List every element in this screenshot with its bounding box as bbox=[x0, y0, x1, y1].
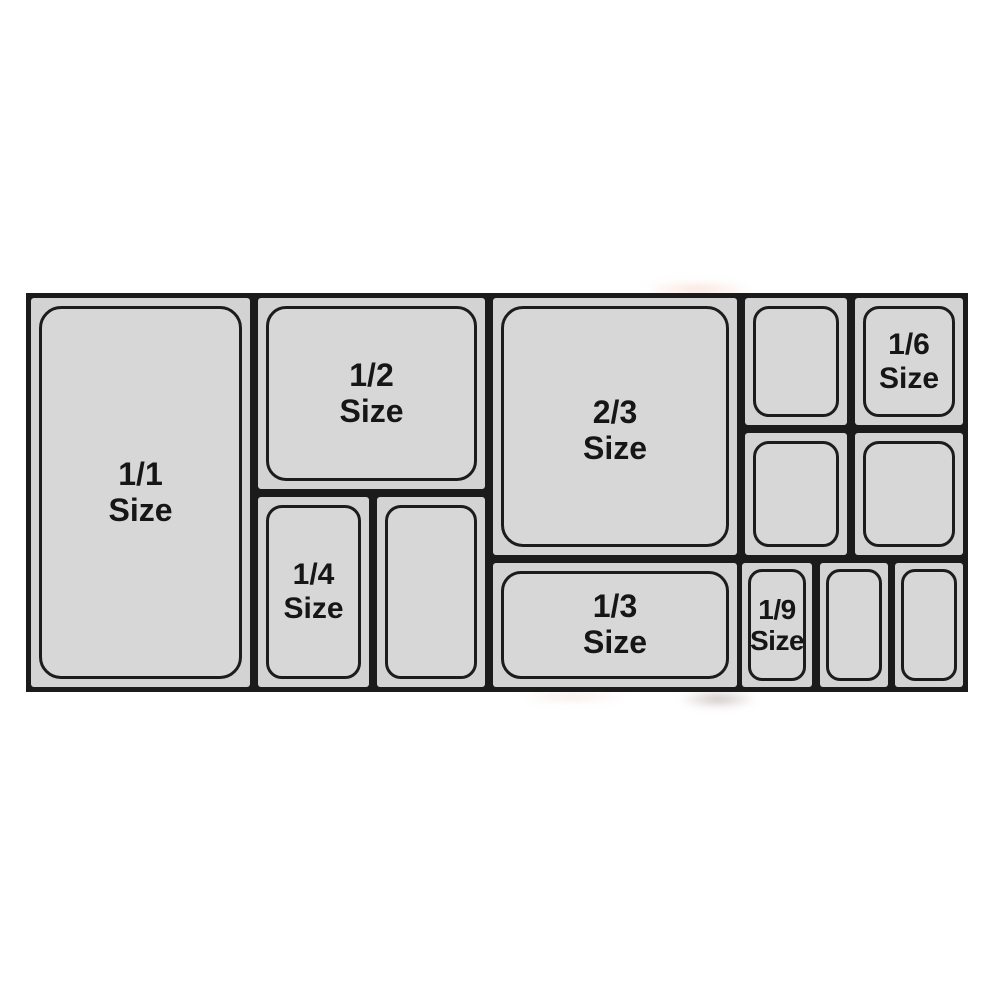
photo-artifact-smudge bbox=[678, 690, 758, 708]
pan-fraction: 2/3 bbox=[593, 395, 637, 431]
pan-tile-unlabeled-ninth-2 bbox=[895, 563, 963, 687]
pan-outline bbox=[385, 505, 477, 679]
pan-outline bbox=[901, 569, 957, 681]
pan-outline bbox=[753, 306, 839, 417]
pan-outline bbox=[753, 441, 839, 547]
pan-size-label: 2/3 Size bbox=[493, 298, 737, 555]
pan-fraction: 1/9 bbox=[758, 594, 795, 625]
pan-tile-1-6: 1/6 Size bbox=[855, 298, 963, 425]
pan-tile-unlabeled-sixth-2 bbox=[745, 433, 847, 555]
pan-size-word: Size bbox=[339, 394, 403, 430]
pan-size-word: Size bbox=[879, 362, 939, 396]
pan-size-word: Size bbox=[583, 431, 647, 467]
pan-fraction: 1/1 bbox=[118, 457, 162, 493]
pan-fraction: 1/2 bbox=[349, 358, 393, 394]
pan-size-label: 1/1 Size bbox=[31, 298, 250, 687]
pan-size-label: 1/2 Size bbox=[258, 298, 485, 489]
pan-size-word: Size bbox=[583, 625, 647, 661]
pan-fraction: 1/4 bbox=[293, 558, 335, 592]
pan-outline bbox=[863, 441, 955, 547]
pan-size-chart: 1/1 Size 1/2 Size 1/4 Size 2/3 Size 1 bbox=[26, 293, 968, 692]
pan-fraction: 1/6 bbox=[888, 328, 930, 362]
pan-outline bbox=[826, 569, 882, 681]
pan-size-label: 1/6 Size bbox=[855, 298, 963, 425]
pan-tile-unlabeled-ninth-1 bbox=[820, 563, 888, 687]
pan-fraction: 1/3 bbox=[593, 589, 637, 625]
pan-tile-unlabeled-sixth-3 bbox=[855, 433, 963, 555]
pan-size-label: 1/3 Size bbox=[493, 563, 737, 687]
pan-tile-unlabeled-sixth-1 bbox=[745, 298, 847, 425]
pan-size-word: Size bbox=[108, 493, 172, 529]
pan-size-label: 1/9 Size bbox=[742, 563, 812, 687]
pan-tile-1-1: 1/1 Size bbox=[31, 298, 250, 687]
pan-size-word: Size bbox=[283, 592, 343, 626]
pan-tile-1-2: 1/2 Size bbox=[258, 298, 485, 489]
pan-size-word: Size bbox=[750, 625, 804, 656]
pan-tile-1-9: 1/9 Size bbox=[742, 563, 812, 687]
pan-tile-1-3: 1/3 Size bbox=[493, 563, 737, 687]
pan-tile-unlabeled-quarter bbox=[377, 497, 485, 687]
pan-tile-2-3: 2/3 Size bbox=[493, 298, 737, 555]
pan-tile-1-4: 1/4 Size bbox=[258, 497, 369, 687]
pan-size-label: 1/4 Size bbox=[258, 497, 369, 687]
